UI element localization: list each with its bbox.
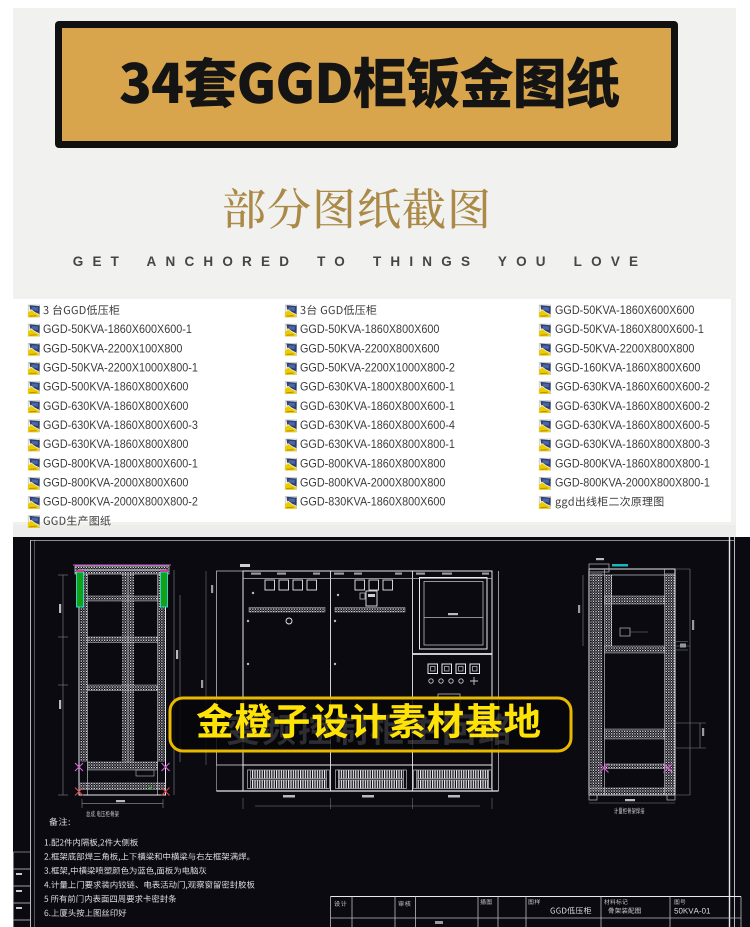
svg-text:GGD-800KVA-1860X800X800: GGD-800KVA-1860X800X800 (300, 456, 446, 470)
svg-text:GGD-800KVA-1800X800X600-1: GGD-800KVA-1800X800X600-1 (43, 456, 198, 470)
svg-text:GGD-630KVA-1860X800X600-3: GGD-630KVA-1860X800X600-3 (43, 418, 198, 432)
svg-text:GGD-50KVA-2200X1000X800-2: GGD-50KVA-2200X1000X800-2 (300, 361, 455, 375)
svg-text:GGD-830KVA-1860X800X600: GGD-830KVA-1860X800X600 (300, 495, 446, 509)
svg-text:GGD-630KVA-1860X800X600-5: GGD-630KVA-1860X800X600-5 (555, 418, 710, 432)
svg-text:GGD-800KVA-2000X800X800: GGD-800KVA-2000X800X800 (300, 476, 446, 490)
svg-text:GGD-630KVA-1860X800X800-3: GGD-630KVA-1860X800X800-3 (555, 437, 710, 451)
svg-text:GGD-630KVA-1860X800X600-4: GGD-630KVA-1860X800X600-4 (300, 418, 455, 432)
svg-text:GGD-630KVA-1860X800X600-1: GGD-630KVA-1860X800X600-1 (300, 399, 455, 413)
svg-text:GGD-630KVA-1860X800X800: GGD-630KVA-1860X800X800 (43, 437, 189, 451)
svg-text:GGD-630KVA-1860X600X600-2: GGD-630KVA-1860X600X600-2 (555, 380, 710, 394)
svg-text:GGD-800KVA-2000X800X800-1: GGD-800KVA-2000X800X800-1 (555, 476, 710, 490)
svg-text:GGD-50KVA-1860X600X600: GGD-50KVA-1860X600X600 (555, 303, 695, 317)
svg-text:GGD-630KVA-1860X800X600: GGD-630KVA-1860X800X600 (43, 399, 189, 413)
svg-text:GGD-630KVA-1800X800X600-1: GGD-630KVA-1800X800X600-1 (300, 380, 455, 394)
svg-text:GET ANCHORED TO THINGS YOU LOV: GET ANCHORED TO THINGS YOU LOVE (73, 254, 647, 269)
svg-text:GGD-50KVA-2200X1000X800-1: GGD-50KVA-2200X1000X800-1 (43, 361, 198, 375)
svg-text:GGD-800KVA-1860X800X800-1: GGD-800KVA-1860X800X800-1 (555, 456, 710, 470)
svg-text:GGD-800KVA-2000X800X600: GGD-800KVA-2000X800X600 (43, 476, 189, 490)
svg-text:GGD-50KVA-2200X100X800: GGD-50KVA-2200X100X800 (43, 341, 183, 355)
svg-text:GGD-630KVA-1860X800X800-1: GGD-630KVA-1860X800X800-1 (300, 437, 455, 451)
svg-text:GGD-630KVA-1860X800X600-2: GGD-630KVA-1860X800X600-2 (555, 399, 710, 413)
svg-text:GGD-50KVA-1860X800X600: GGD-50KVA-1860X800X600 (300, 322, 440, 336)
svg-text:GGD-50KVA-1860X800X600-1: GGD-50KVA-1860X800X600-1 (555, 322, 704, 336)
svg-text:GGD-50KVA-1860X600X600-1: GGD-50KVA-1860X600X600-1 (43, 322, 192, 336)
svg-text:GGD-160KVA-1860X800X600: GGD-160KVA-1860X800X600 (555, 361, 701, 375)
svg-text:GGD-800KVA-2000X800X800-2: GGD-800KVA-2000X800X800-2 (43, 495, 198, 509)
svg-text:GGD-50KVA-2200X800X800: GGD-50KVA-2200X800X800 (555, 341, 695, 355)
svg-text:GGD-50KVA-2200X800X600: GGD-50KVA-2200X800X600 (300, 341, 440, 355)
svg-text:GGD-500KVA-1860X800X600: GGD-500KVA-1860X800X600 (43, 380, 189, 394)
